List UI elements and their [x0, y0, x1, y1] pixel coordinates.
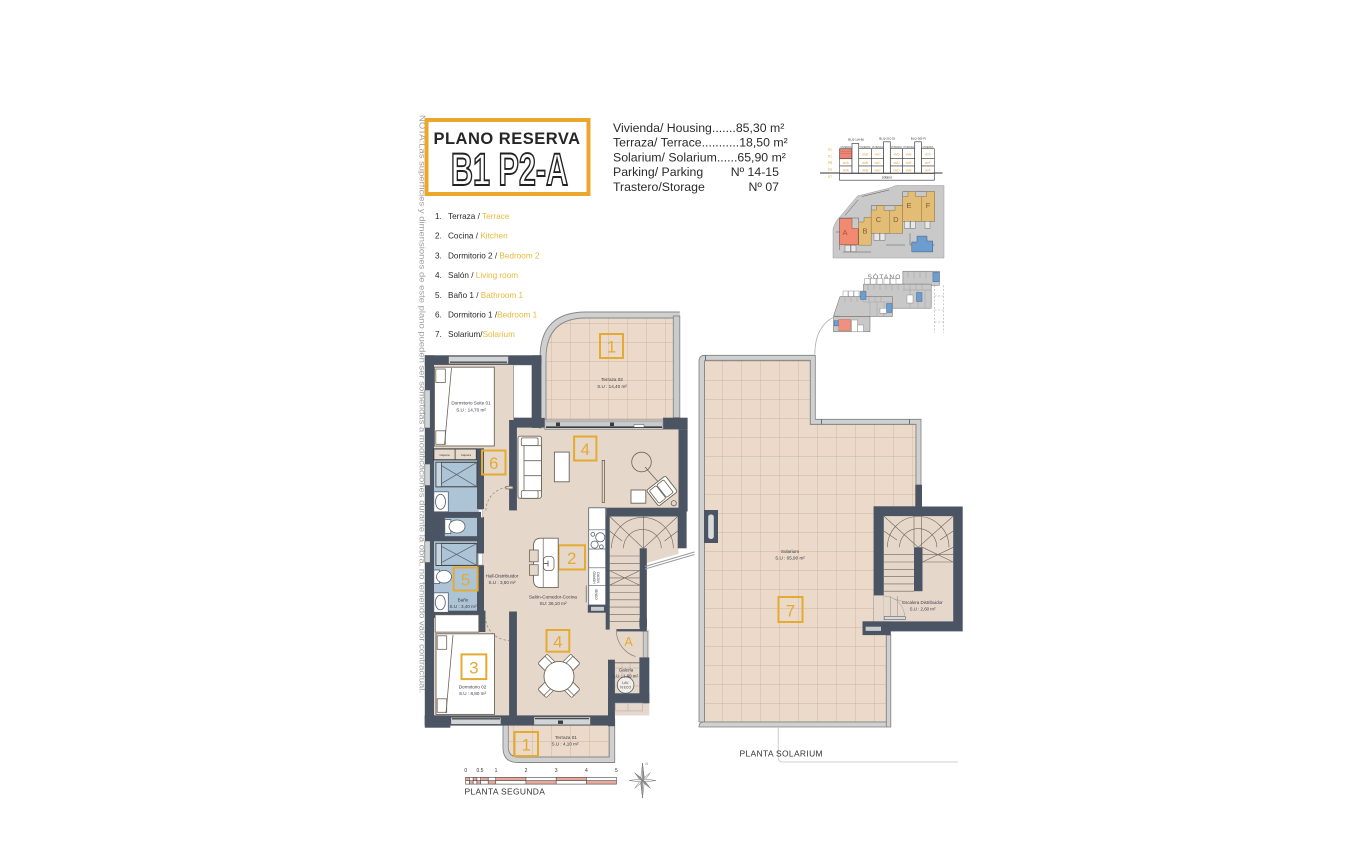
svg-text:2: 2 [525, 768, 528, 774]
svg-text:vivF: vivF [925, 161, 931, 165]
svg-text:COMBI: COMBI [595, 589, 599, 600]
svg-text:S.U : 3,40 m²: S.U : 3,40 m² [449, 604, 477, 609]
svg-text:6: 6 [489, 454, 498, 473]
svg-text:vivE: vivE [906, 161, 912, 165]
svg-text:Cocina / Kitchen: Cocina / Kitchen [448, 232, 508, 241]
svg-text:Baño 1 / Bathroom 1: Baño 1 / Bathroom 1 [448, 291, 524, 300]
svg-text:Parking/ Parking: Parking/ Parking [613, 165, 703, 179]
svg-text:vivB: vivB [862, 161, 868, 165]
svg-text:S.U : 14,40 m²: S.U : 14,40 m² [597, 384, 627, 389]
svg-text:Terraza / Terrace: Terraza / Terrace [448, 212, 510, 221]
svg-text:N ECO: N ECO [620, 686, 631, 690]
svg-text:C: C [876, 215, 882, 224]
svg-text:VIVIENDA: VIVIENDA [840, 146, 852, 149]
svg-text:2.: 2. [435, 232, 442, 241]
svg-text:vivD: vivD [893, 168, 900, 172]
svg-text:7.: 7. [435, 330, 442, 339]
svg-text:vivE: vivE [906, 168, 912, 172]
svg-text:Solarium/Solarium: Solarium/Solarium [448, 330, 515, 339]
svg-text:Salón / Living room: Salón / Living room [448, 271, 518, 280]
svg-text:Dormitorio 02: Dormitorio 02 [459, 685, 487, 690]
svg-text:F: F [926, 201, 931, 210]
svg-text:VIVIENDA: VIVIENDA [922, 146, 934, 149]
svg-text:3.: 3. [435, 251, 442, 260]
svg-text:Caprera: Caprera [439, 453, 450, 457]
svg-text:1: 1 [607, 338, 616, 357]
svg-text:vivB: vivB [862, 168, 868, 172]
svg-text:vivC: vivC [874, 168, 881, 172]
svg-text:Baño: Baño [458, 598, 469, 603]
svg-text:A: A [624, 635, 633, 649]
svg-text:4: 4 [580, 440, 589, 459]
svg-text:SU: 36,10 m²: SU: 36,10 m² [539, 601, 567, 606]
svg-text:4.: 4. [435, 271, 442, 280]
svg-text:vivE: vivE [906, 153, 912, 157]
svg-text:Solarium: Solarium [781, 549, 799, 554]
svg-text:Trastero/Storage: Trastero/Storage [613, 180, 705, 194]
svg-text:Galería: Galería [619, 668, 634, 673]
svg-text:vivD: vivD [893, 161, 900, 165]
svg-text:VIVIENDA: VIVIENDA [859, 146, 871, 149]
svg-text:2: 2 [567, 549, 576, 568]
svg-text:E: E [906, 201, 911, 210]
svg-text:PS: PS [828, 168, 832, 172]
svg-text:sótano: sótano [882, 176, 892, 180]
svg-text:S.U : 3,50 m²: S.U : 3,50 m² [488, 580, 516, 585]
svg-text:S.U : 2,60 m²: S.U : 2,60 m² [910, 607, 936, 612]
svg-text:B: B [862, 227, 867, 236]
svg-text:Solarium/ Solarium......65,90: Solarium/ Solarium......65,90 m² [613, 150, 786, 164]
svg-text:3: 3 [555, 768, 558, 774]
svg-text:A: A [842, 228, 847, 237]
svg-text:VIVIENDA: VIVIENDA [903, 146, 915, 149]
svg-text:Caprera: Caprera [461, 453, 472, 457]
svg-text:S.U : 65,90 m²: S.U : 65,90 m² [775, 556, 805, 561]
svg-text:B1 P2-A: B1 P2-A [451, 145, 568, 195]
svg-text:0: 0 [464, 768, 467, 774]
svg-text:P2: P2 [828, 148, 832, 152]
svg-text:vivA: vivA [843, 168, 850, 172]
svg-text:3: 3 [469, 659, 478, 678]
svg-text:vivB: vivB [862, 153, 868, 157]
svg-text:Dormitorio Suite 01: Dormitorio Suite 01 [451, 401, 491, 406]
svg-text:BLQ-3(E-F): BLQ-3(E-F) [911, 137, 927, 141]
svg-text:Nº 07: Nº 07 [749, 180, 780, 194]
svg-text:0.5: 0.5 [477, 768, 484, 774]
svg-text:Dormitorio 1 /Bedroom 1: Dormitorio 1 /Bedroom 1 [448, 311, 538, 320]
svg-text:7: 7 [786, 602, 795, 621]
svg-text:5: 5 [615, 768, 618, 774]
svg-text:Salón-Comedor-Cocina: Salón-Comedor-Cocina [529, 595, 577, 600]
svg-text:1.: 1. [435, 212, 442, 221]
svg-text:ST: ST [828, 175, 832, 179]
svg-text:LAV.: LAV. [622, 681, 629, 685]
svg-text:vivC: vivC [874, 153, 881, 157]
svg-text:vivC: vivC [874, 161, 881, 165]
svg-text:BLQ-2(C-D): BLQ-2(C-D) [879, 137, 895, 141]
svg-text:5: 5 [461, 571, 470, 590]
svg-text:VIVIENDA: VIVIENDA [872, 146, 884, 149]
svg-text:5.: 5. [435, 291, 442, 300]
svg-text:PLANTA SOLARIUM: PLANTA SOLARIUM [740, 749, 823, 759]
svg-text:P1: P1 [828, 155, 832, 159]
svg-text:BLQ-1(A-B): BLQ-1(A-B) [848, 138, 864, 142]
svg-text:S.U : 4,10 m²: S.U : 4,10 m² [551, 742, 579, 747]
svg-text:Terraza 01: Terraza 01 [555, 735, 577, 740]
svg-text:S.U : 1,90 m²: S.U : 1,90 m² [612, 674, 638, 679]
svg-text:Terraza/ Terrace...........18,: Terraza/ Terrace...........18,50 m² [613, 136, 788, 150]
svg-text:1: 1 [521, 736, 530, 755]
svg-text:1: 1 [495, 768, 498, 774]
svg-text:S.U : 14,70 m²: S.U : 14,70 m² [456, 408, 486, 413]
svg-text:S.U : 8,80 m²: S.U : 8,80 m² [459, 691, 487, 696]
svg-text:4: 4 [553, 633, 562, 652]
svg-text:Terraza 02: Terraza 02 [601, 377, 623, 382]
svg-text:Vivienda/ Housing.......85,30: Vivienda/ Housing.......85,30 m² [613, 121, 784, 135]
svg-text:vivD: vivD [893, 153, 900, 157]
svg-text:VIVIENDA: VIVIENDA [891, 146, 903, 149]
svg-text:PLANTA SEGUNDA: PLANTA SEGUNDA [465, 787, 546, 797]
svg-text:Hall-Distribuidor: Hall-Distribuidor [486, 574, 519, 579]
svg-text:D: D [893, 215, 899, 224]
svg-text:vivF: vivF [925, 168, 931, 172]
svg-text:MICRO: MICRO [597, 572, 601, 583]
svg-text:4: 4 [585, 768, 588, 774]
svg-text:6.: 6. [435, 311, 442, 320]
svg-text:PB: PB [828, 161, 832, 165]
svg-text:Dormitorio 2 / Bedroom 2: Dormitorio 2 / Bedroom 2 [448, 251, 540, 260]
svg-text:Nº 14-15: Nº 14-15 [731, 165, 779, 179]
svg-text:vivA: vivA [843, 161, 850, 165]
svg-text:Escalera Distribuidor: Escalera Distribuidor [902, 600, 943, 605]
svg-text:vivF: vivF [925, 153, 931, 157]
